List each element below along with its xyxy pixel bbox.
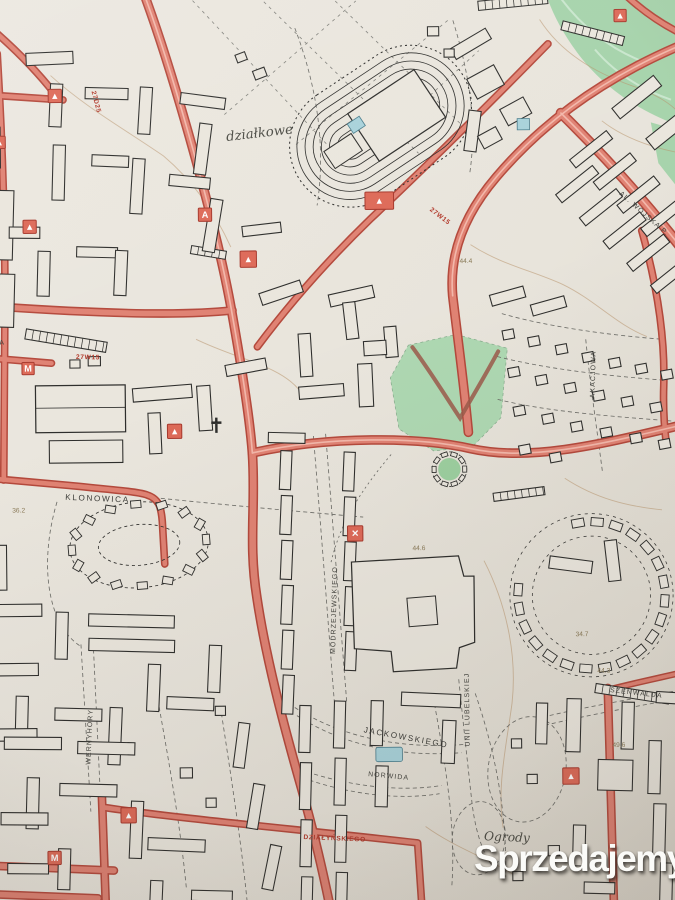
building-outline bbox=[635, 363, 648, 374]
street-label-unii-lubelskiej: UNII LUBELSKIEJ bbox=[464, 673, 472, 747]
building-outline bbox=[600, 427, 613, 438]
building-outline bbox=[300, 820, 312, 867]
building-outline bbox=[648, 741, 662, 794]
map-symbol: M bbox=[22, 362, 34, 374]
building-outline bbox=[138, 87, 153, 135]
elevation-marker: 34.7 bbox=[576, 631, 589, 638]
building-outline bbox=[536, 703, 548, 744]
street-label-akacjowa: AKACJOWA bbox=[590, 351, 598, 399]
building-outline bbox=[49, 440, 123, 463]
building-outline bbox=[0, 190, 14, 260]
building-outline bbox=[653, 804, 667, 857]
building-outline bbox=[298, 333, 313, 377]
map-symbol-icon: ▲ bbox=[0, 137, 4, 147]
map-symbol: ▲ bbox=[121, 808, 136, 823]
building-outline bbox=[26, 51, 73, 65]
estate-house bbox=[514, 583, 523, 596]
building-outline bbox=[114, 250, 128, 295]
street-label-partial: ZA bbox=[0, 340, 5, 348]
building-outline bbox=[148, 413, 162, 454]
pavilion bbox=[105, 505, 116, 514]
map-symbol: ▲ bbox=[563, 768, 579, 784]
pavilion bbox=[162, 576, 173, 585]
building-outline bbox=[299, 763, 311, 810]
map-symbol: ✕ bbox=[347, 526, 362, 541]
rotunda-segment bbox=[432, 466, 436, 472]
estate-house bbox=[579, 664, 592, 673]
building-outline bbox=[370, 701, 383, 746]
building-outline bbox=[358, 363, 374, 406]
map-symbol: ▲ bbox=[614, 9, 626, 21]
map-symbol: ▲ bbox=[240, 251, 256, 267]
building-outline bbox=[444, 49, 454, 57]
building-outline bbox=[608, 357, 621, 368]
building-outline bbox=[149, 880, 163, 900]
building-outline bbox=[650, 402, 663, 413]
building-outline bbox=[333, 701, 345, 748]
map-symbol-icon: ▲ bbox=[50, 91, 59, 101]
building-outline bbox=[427, 27, 438, 36]
building-outline bbox=[92, 155, 129, 168]
building-outline bbox=[363, 340, 386, 356]
building-outline bbox=[281, 585, 294, 624]
building-outline bbox=[0, 545, 7, 590]
building-outline bbox=[191, 890, 232, 900]
building-outline bbox=[511, 739, 521, 748]
building-outline bbox=[570, 421, 583, 432]
pavilion bbox=[130, 500, 141, 508]
map-symbol-icon: ▲ bbox=[375, 196, 384, 206]
building-outline bbox=[280, 495, 293, 534]
building-outline bbox=[564, 382, 577, 393]
building-outline bbox=[1, 813, 48, 826]
building-outline bbox=[527, 774, 537, 783]
map-symbol-icon: ▲ bbox=[616, 11, 625, 21]
building-outline bbox=[548, 845, 559, 855]
estate-house bbox=[591, 517, 604, 526]
building-outline bbox=[528, 336, 541, 347]
building-outline bbox=[8, 864, 49, 874]
building-outline bbox=[180, 768, 192, 778]
building-outline bbox=[4, 737, 61, 750]
building-outline bbox=[0, 604, 42, 617]
building-outline bbox=[206, 798, 216, 807]
map-symbol: ▲ bbox=[0, 136, 5, 148]
building-outline bbox=[572, 825, 585, 866]
map-symbol: ▲ bbox=[167, 424, 181, 438]
building-outline bbox=[630, 433, 643, 444]
building-outline bbox=[401, 692, 461, 708]
building-outline bbox=[0, 663, 38, 676]
building-outline bbox=[535, 374, 548, 385]
building-outline bbox=[549, 452, 562, 463]
building-outline bbox=[542, 413, 555, 424]
map-symbol: ▲ bbox=[23, 220, 36, 233]
building-outline bbox=[52, 145, 66, 200]
map-symbol-icon: ✕ bbox=[351, 528, 359, 538]
building-outline bbox=[70, 360, 80, 368]
map-symbol-icon: ▲ bbox=[244, 254, 253, 264]
building-outline bbox=[598, 759, 633, 790]
building-outline bbox=[513, 405, 526, 416]
rotunda-segment bbox=[463, 466, 467, 472]
map-symbol: M bbox=[48, 851, 61, 864]
building-outline bbox=[60, 783, 117, 797]
building-outline bbox=[301, 877, 313, 900]
route-marker: 27W15 bbox=[76, 354, 100, 362]
estate-house bbox=[659, 575, 669, 589]
building-outline bbox=[268, 432, 305, 443]
building-outline bbox=[343, 452, 356, 491]
building-outline bbox=[502, 329, 515, 340]
building-outline bbox=[167, 697, 214, 711]
map-symbol-icon: A bbox=[202, 210, 209, 220]
building-outline bbox=[658, 438, 671, 449]
building-outline bbox=[130, 158, 145, 214]
building-outline bbox=[148, 838, 206, 853]
map-symbol-icon: ▲ bbox=[170, 426, 179, 436]
elevation-marker: 44.3 bbox=[597, 668, 610, 675]
building-outline bbox=[280, 540, 293, 579]
building-outline bbox=[197, 385, 213, 431]
building-outline bbox=[0, 274, 15, 327]
building-outline bbox=[282, 675, 295, 714]
building-outline bbox=[55, 708, 102, 721]
map-symbol-icon: M bbox=[24, 364, 32, 374]
building-outline bbox=[584, 882, 615, 894]
map-symbol-icon: ▲ bbox=[566, 771, 575, 781]
map-symbol: ▲ bbox=[365, 192, 394, 210]
building-outline bbox=[77, 247, 118, 258]
city-map: ▲▲A▲▲▲M✕▲▲M▲▲ działkowe Ogrody AL. WOJSK… bbox=[0, 0, 675, 900]
building-outline bbox=[37, 251, 50, 296]
area-label-ogrody: Ogrody bbox=[484, 829, 531, 845]
building-outline bbox=[279, 451, 292, 490]
building-outline bbox=[334, 758, 346, 805]
map-symbol-icon: ▲ bbox=[25, 222, 34, 232]
map-symbol-icon: M bbox=[51, 853, 59, 863]
building-outline bbox=[299, 705, 311, 752]
building-outline bbox=[147, 664, 161, 711]
map-symbol: ▲ bbox=[48, 89, 61, 102]
building-outline bbox=[621, 396, 634, 407]
estate-house bbox=[514, 602, 524, 616]
elevation-marker: 44.6 bbox=[412, 545, 425, 552]
elevation-marker: 44.4 bbox=[459, 258, 472, 265]
building-outline bbox=[513, 871, 523, 880]
building-outline bbox=[519, 444, 532, 455]
building-outline bbox=[208, 645, 222, 692]
building-outline bbox=[661, 369, 674, 380]
pavilion bbox=[202, 534, 210, 545]
elevation-marker: 49.6 bbox=[612, 742, 625, 749]
map-symbol-icon: ▲ bbox=[124, 810, 133, 820]
building-outline bbox=[555, 344, 568, 355]
estate-house bbox=[571, 518, 585, 528]
pavilion bbox=[137, 582, 148, 590]
building-outline bbox=[508, 367, 521, 378]
elevation-marker: 36.2 bbox=[12, 507, 25, 514]
building-outline bbox=[566, 699, 582, 752]
building-outline bbox=[108, 707, 123, 765]
building-outline bbox=[335, 872, 347, 900]
building-outline bbox=[55, 612, 68, 659]
map-photo: ▲▲A▲▲▲M✕▲▲M▲▲ działkowe Ogrody AL. WOJSK… bbox=[0, 0, 675, 900]
building-outline bbox=[215, 706, 225, 715]
building-outline bbox=[88, 614, 174, 628]
estate-house bbox=[660, 594, 669, 607]
building-outline bbox=[660, 863, 673, 900]
pavilion bbox=[68, 545, 76, 556]
map-symbol: A bbox=[198, 208, 211, 221]
building-outline bbox=[89, 638, 175, 652]
building-outline bbox=[281, 630, 294, 669]
